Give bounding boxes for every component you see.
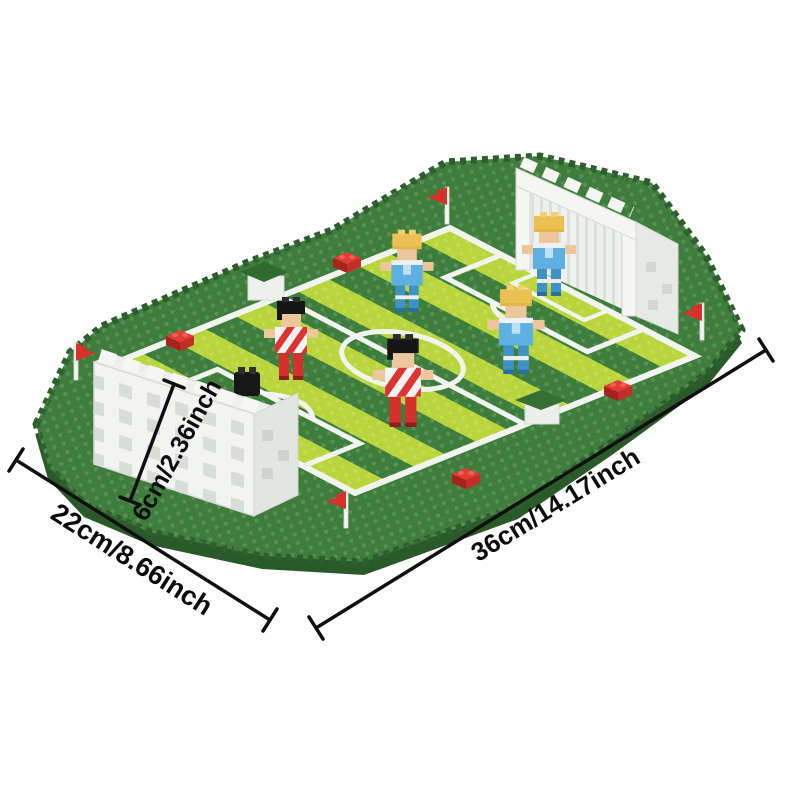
goal-wall-hole xyxy=(648,300,658,310)
brick-football-field-scene: 22cm/8.66inch 36cm/14.17inch 6cm/2.36inc… xyxy=(0,0,800,800)
goal-side-face xyxy=(254,393,298,516)
goal-wall-hole xyxy=(646,262,656,272)
dimension-end-tick xyxy=(309,617,323,639)
product-image: 22cm/8.66inch 36cm/14.17inch 6cm/2.36inc… xyxy=(0,0,800,800)
goal-wall-hole xyxy=(662,284,672,294)
goal-wall-hole xyxy=(262,468,273,479)
dimension-end-tick xyxy=(263,609,277,631)
dimension-end-tick xyxy=(759,339,773,361)
goal-post xyxy=(516,180,530,270)
goal-wall-hole xyxy=(278,450,289,461)
dimension-end-tick xyxy=(9,449,23,471)
goal-wall-hole xyxy=(262,430,273,441)
